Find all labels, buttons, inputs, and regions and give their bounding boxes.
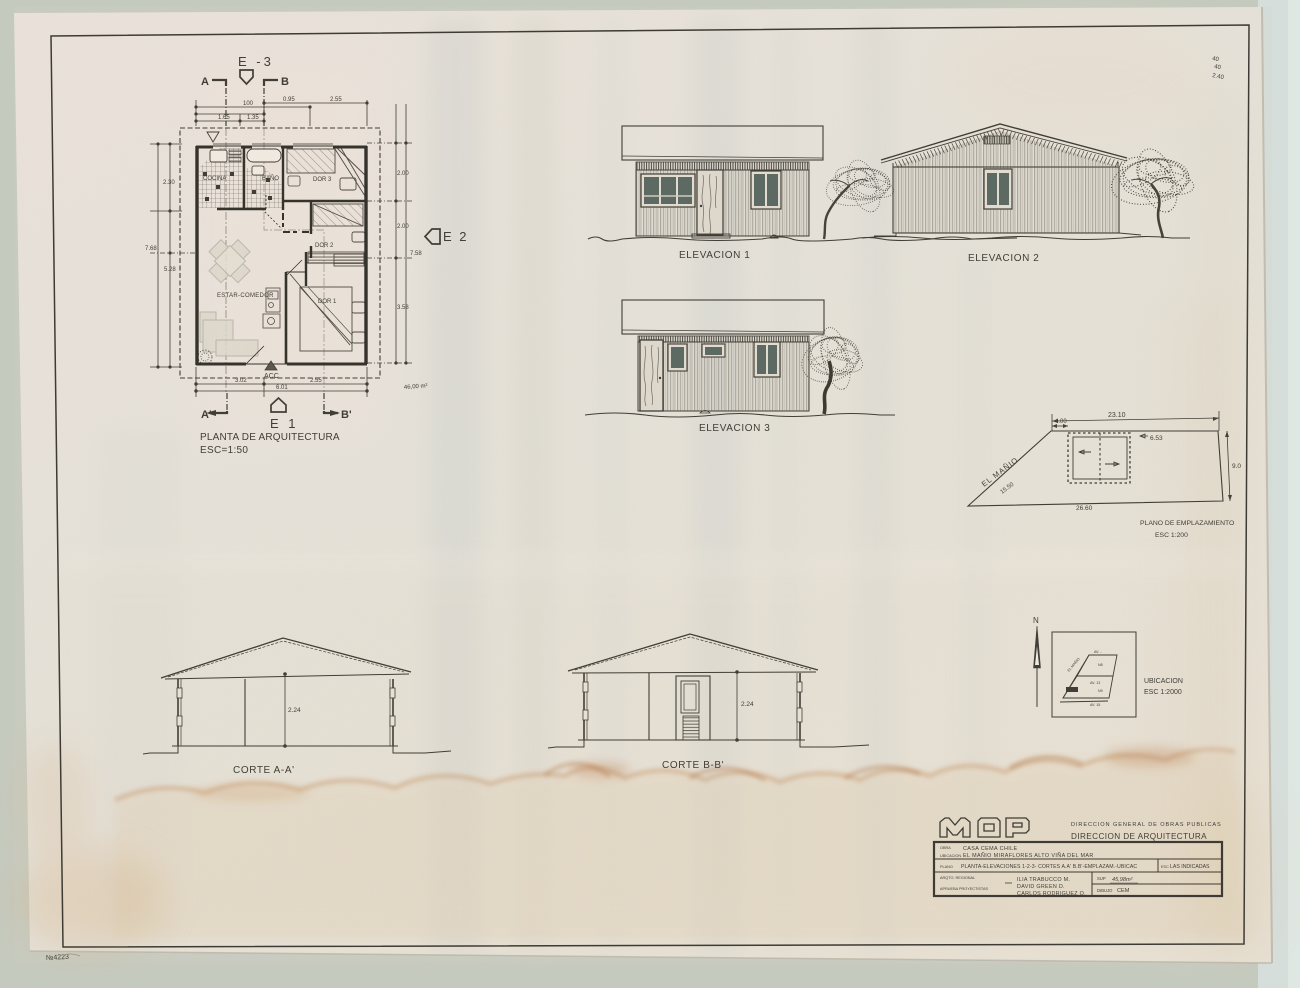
svg-text:ELEVACION 3: ELEVACION 3 <box>699 423 770 434</box>
svg-text:EL MAÑIO MIRAFLORES ALTO: EL MAÑIO MIRAFLORES ALTO VIÑA DEL MAR <box>963 852 1094 859</box>
svg-text:2.24: 2.24 <box>741 701 754 708</box>
svg-text:DOR 1: DOR 1 <box>318 299 337 305</box>
svg-text:ESC=1:50: ESC=1:50 <box>200 445 248 456</box>
svg-text:CEM: CEM <box>1117 888 1130 894</box>
svg-text:0.95: 0.95 <box>283 97 295 103</box>
svg-text:2.55: 2.55 <box>310 378 322 384</box>
svg-text:100: 100 <box>243 101 254 107</box>
svg-text:4.00: 4.00 <box>1055 419 1067 425</box>
svg-text:E 2: E 2 <box>443 229 469 244</box>
svg-text:ESC 1:2000: ESC 1:2000 <box>1144 689 1182 696</box>
svg-text:3.02: 3.02 <box>235 378 247 384</box>
svg-text:SUP: SUP <box>1097 876 1106 881</box>
svg-text:1.65: 1.65 <box>218 115 230 121</box>
svg-text:B: B <box>281 76 289 88</box>
svg-text:PLANO DE EMPLAZAMIENTO: PLANO DE EMPLAZAMIENTO <box>1140 520 1234 527</box>
svg-text:BAÑO: BAÑO <box>262 175 279 182</box>
svg-text:E -3: E -3 <box>238 54 274 69</box>
svg-text:2.30: 2.30 <box>163 180 175 186</box>
svg-text:6.01: 6.01 <box>276 385 288 391</box>
svg-text:45,98m²: 45,98m² <box>1112 877 1134 883</box>
svg-text:N8: N8 <box>1098 663 1103 667</box>
svg-text:7.68: 7.68 <box>145 246 157 252</box>
svg-text:ELEVACION 2: ELEVACION 2 <box>968 253 1039 264</box>
svg-text:5.28: 5.28 <box>164 267 176 273</box>
svg-text:2.55: 2.55 <box>330 97 342 103</box>
svg-text:3.58: 3.58 <box>397 305 409 311</box>
svg-text:ESC 1:200: ESC 1:200 <box>1155 532 1188 539</box>
svg-text:DOR 3: DOR 3 <box>313 177 332 183</box>
svg-text:1.35: 1.35 <box>247 115 259 121</box>
svg-text:ESTAR-COMEDOR: ESTAR-COMEDOR <box>217 293 274 299</box>
svg-text:DIRECCION GENERAL DE OBRAS: DIRECCION GENERAL DE OBRAS PUBLICAS <box>1071 822 1222 828</box>
svg-text:2.24: 2.24 <box>288 707 301 714</box>
svg-text:UBICACION: UBICACION <box>1144 678 1183 685</box>
svg-text:COCINA: COCINA <box>203 176 226 182</box>
svg-text:ELEVACION 1: ELEVACION 1 <box>679 250 750 261</box>
svg-text:N: N <box>1033 616 1039 625</box>
svg-text:9.0: 9.0 <box>1232 463 1241 470</box>
svg-text:DOR 2: DOR 2 <box>315 243 334 249</box>
svg-text:AV. 13: AV. 13 <box>1090 681 1100 685</box>
svg-text:7.58: 7.58 <box>410 251 422 257</box>
svg-text:ACC: ACC <box>264 373 279 380</box>
svg-text:OBRA: OBRA <box>940 846 951 850</box>
svg-text:CARLOS RODRIGUEZ O.: CARLOS RODRIGUEZ O. <box>1017 891 1086 897</box>
svg-text:N9: N9 <box>1098 689 1103 693</box>
svg-text:CORTE B-B': CORTE B-B' <box>662 760 724 771</box>
svg-text:PLANO: PLANO <box>940 865 953 869</box>
svg-text:AV. ..: AV. .. <box>1094 650 1102 654</box>
svg-text:UBICACION: UBICACION <box>940 854 961 858</box>
svg-text:PLANTA-ELEVACIONES 1-2-3- CORT: PLANTA-ELEVACIONES 1-2-3- CORTES A.A' B.… <box>961 864 1137 870</box>
svg-text:A: A <box>201 76 209 88</box>
svg-text:ARQTO. REGIONAL: ARQTO. REGIONAL <box>940 876 975 880</box>
svg-text:AV. 15: AV. 15 <box>1090 703 1100 707</box>
svg-text:APRUEBA PROYECTISTAS: APRUEBA PROYECTISTAS <box>940 887 989 891</box>
svg-text:№4223: №4223 <box>46 954 70 962</box>
svg-text:CORTE A-A': CORTE A-A' <box>233 765 295 776</box>
svg-text:LAS INDICADAS: LAS INDICADAS <box>1170 864 1210 870</box>
svg-text:DAVID GREEN D.: DAVID GREEN D. <box>1017 884 1065 890</box>
svg-text:PLANTA DE ARQUITECTURA: PLANTA DE ARQUITECTURA <box>200 432 340 443</box>
svg-text:2.00: 2.00 <box>397 171 409 177</box>
svg-text:ESC: ESC <box>1161 865 1169 869</box>
svg-text:DIRECCION DE ARQUITECTUR: DIRECCION DE ARQUITECTURA <box>1071 832 1207 841</box>
svg-text:DIBUJO: DIBUJO <box>1097 888 1113 893</box>
svg-text:CASA CEMA CHILE: CASA CEMA CHILE <box>963 846 1018 852</box>
svg-text:6.53: 6.53 <box>1150 435 1163 442</box>
svg-text:23.10: 23.10 <box>1108 412 1126 419</box>
svg-text:A': A' <box>201 409 212 421</box>
svg-text:26.60: 26.60 <box>1076 505 1093 512</box>
svg-text:ILIA TRABUCCO M.: ILIA TRABUCCO M. <box>1017 877 1070 883</box>
svg-text:E 1: E 1 <box>270 416 299 431</box>
svg-text:B': B' <box>341 409 352 421</box>
svg-text:2.00: 2.00 <box>397 224 409 230</box>
